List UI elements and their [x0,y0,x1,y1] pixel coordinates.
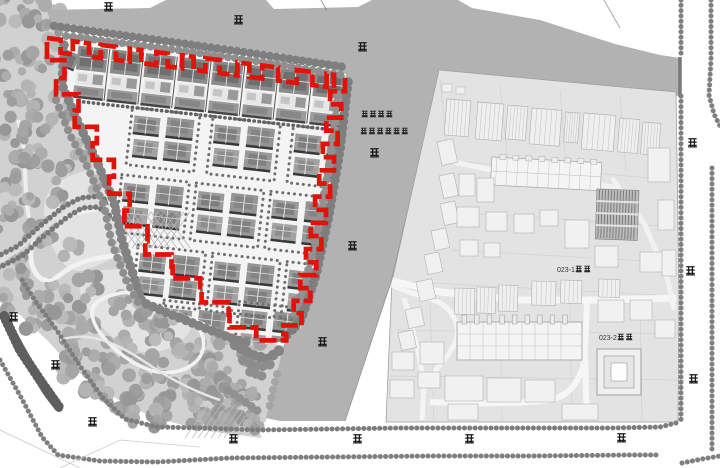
svg-text:023-2: 023-2 [599,335,617,342]
svg-text:023-1: 023-1 [557,267,575,274]
